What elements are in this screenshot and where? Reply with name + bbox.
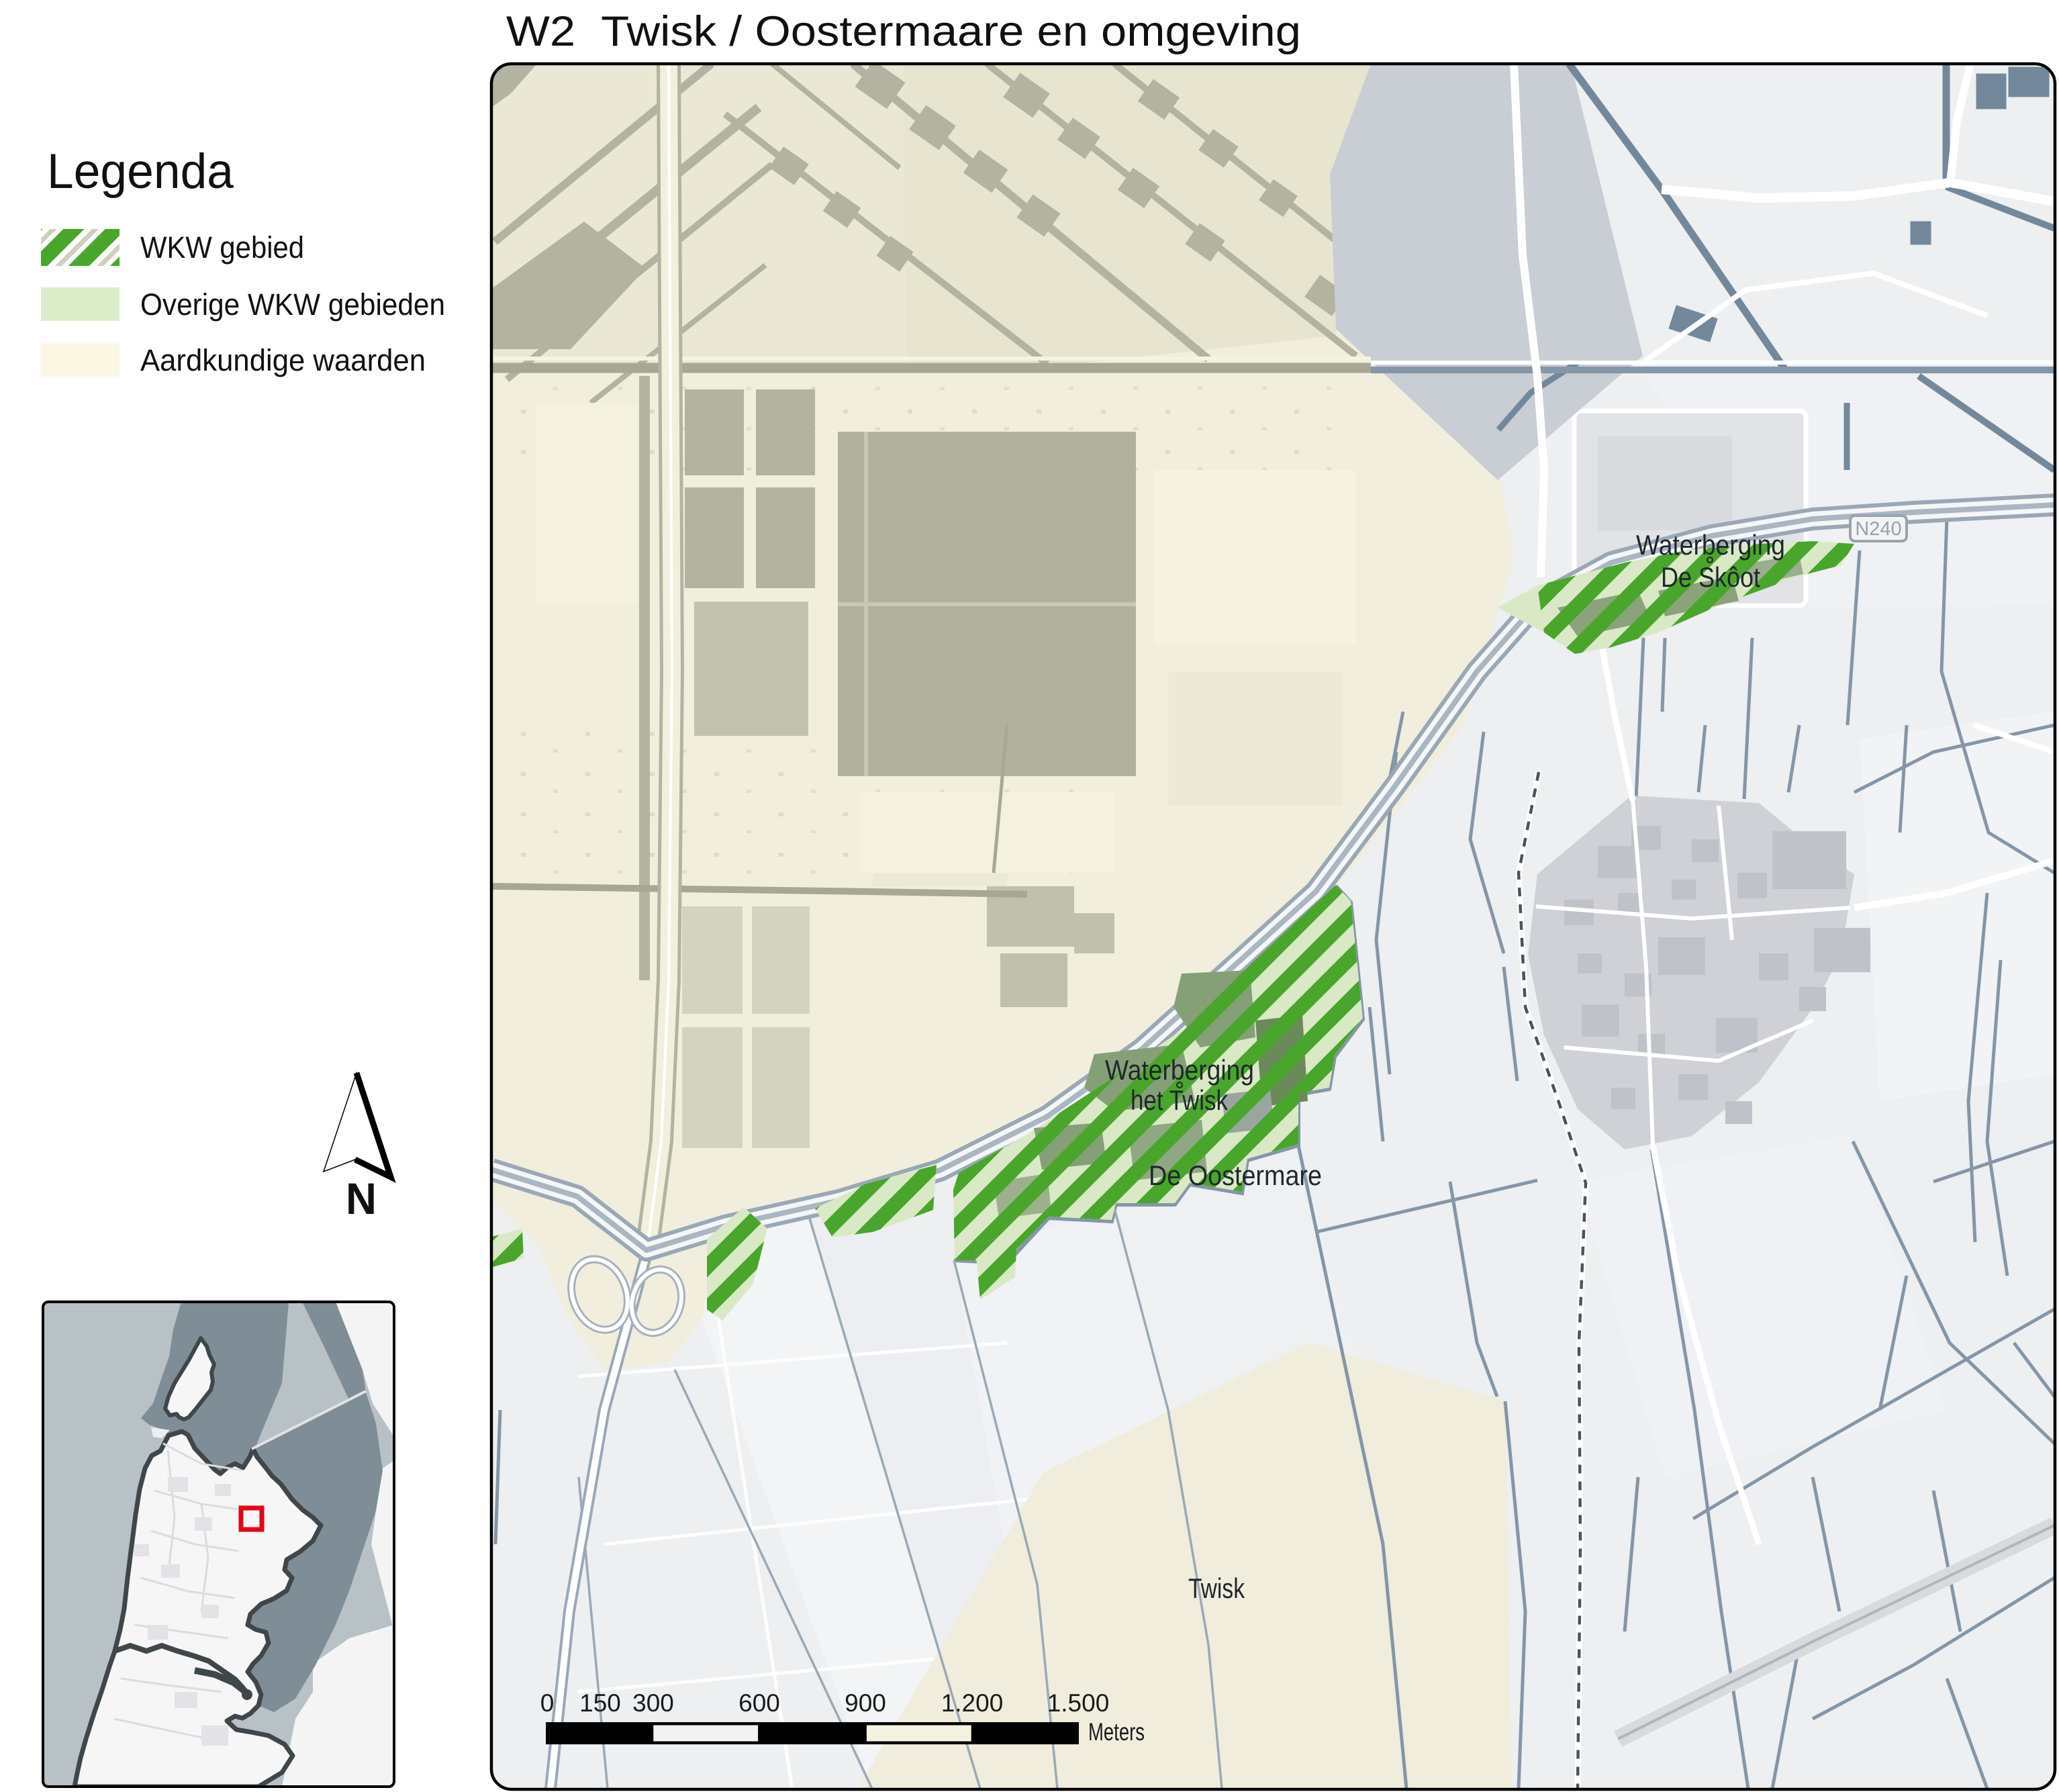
- svg-text:Aardkundige waarden: Aardkundige waarden: [140, 343, 426, 377]
- svg-text:600: 600: [738, 1689, 780, 1717]
- svg-text:0: 0: [540, 1689, 555, 1717]
- svg-text:150: 150: [579, 1689, 621, 1717]
- svg-text:Twisk: Twisk: [1188, 1572, 1245, 1604]
- svg-text:Waterberging: Waterberging: [1636, 529, 1785, 561]
- svg-text:De Oostermare: De Oostermare: [1149, 1160, 1322, 1191]
- svg-text:N: N: [346, 1174, 377, 1223]
- svg-text:N240: N240: [1855, 518, 1901, 540]
- svg-text:W2 Twisk / Oostermaare en omg: W2 Twisk / Oostermaare en omgeving: [506, 8, 1301, 55]
- svg-text:Meters: Meters: [1088, 1718, 1145, 1746]
- svg-text:1.500: 1.500: [1047, 1689, 1110, 1717]
- svg-text:WKW gebied: WKW gebied: [140, 230, 304, 265]
- svg-text:het Twisk: het Twisk: [1131, 1084, 1229, 1116]
- svg-text:300: 300: [632, 1689, 674, 1717]
- svg-text:Legenda: Legenda: [47, 144, 234, 199]
- svg-text:Overige WKW gebieden: Overige WKW gebieden: [140, 287, 445, 322]
- svg-text:De Skôot: De Skôot: [1661, 561, 1760, 593]
- svg-text:1.200: 1.200: [941, 1689, 1004, 1717]
- svg-text:Waterberging: Waterberging: [1105, 1054, 1254, 1086]
- svg-text:900: 900: [845, 1689, 886, 1717]
